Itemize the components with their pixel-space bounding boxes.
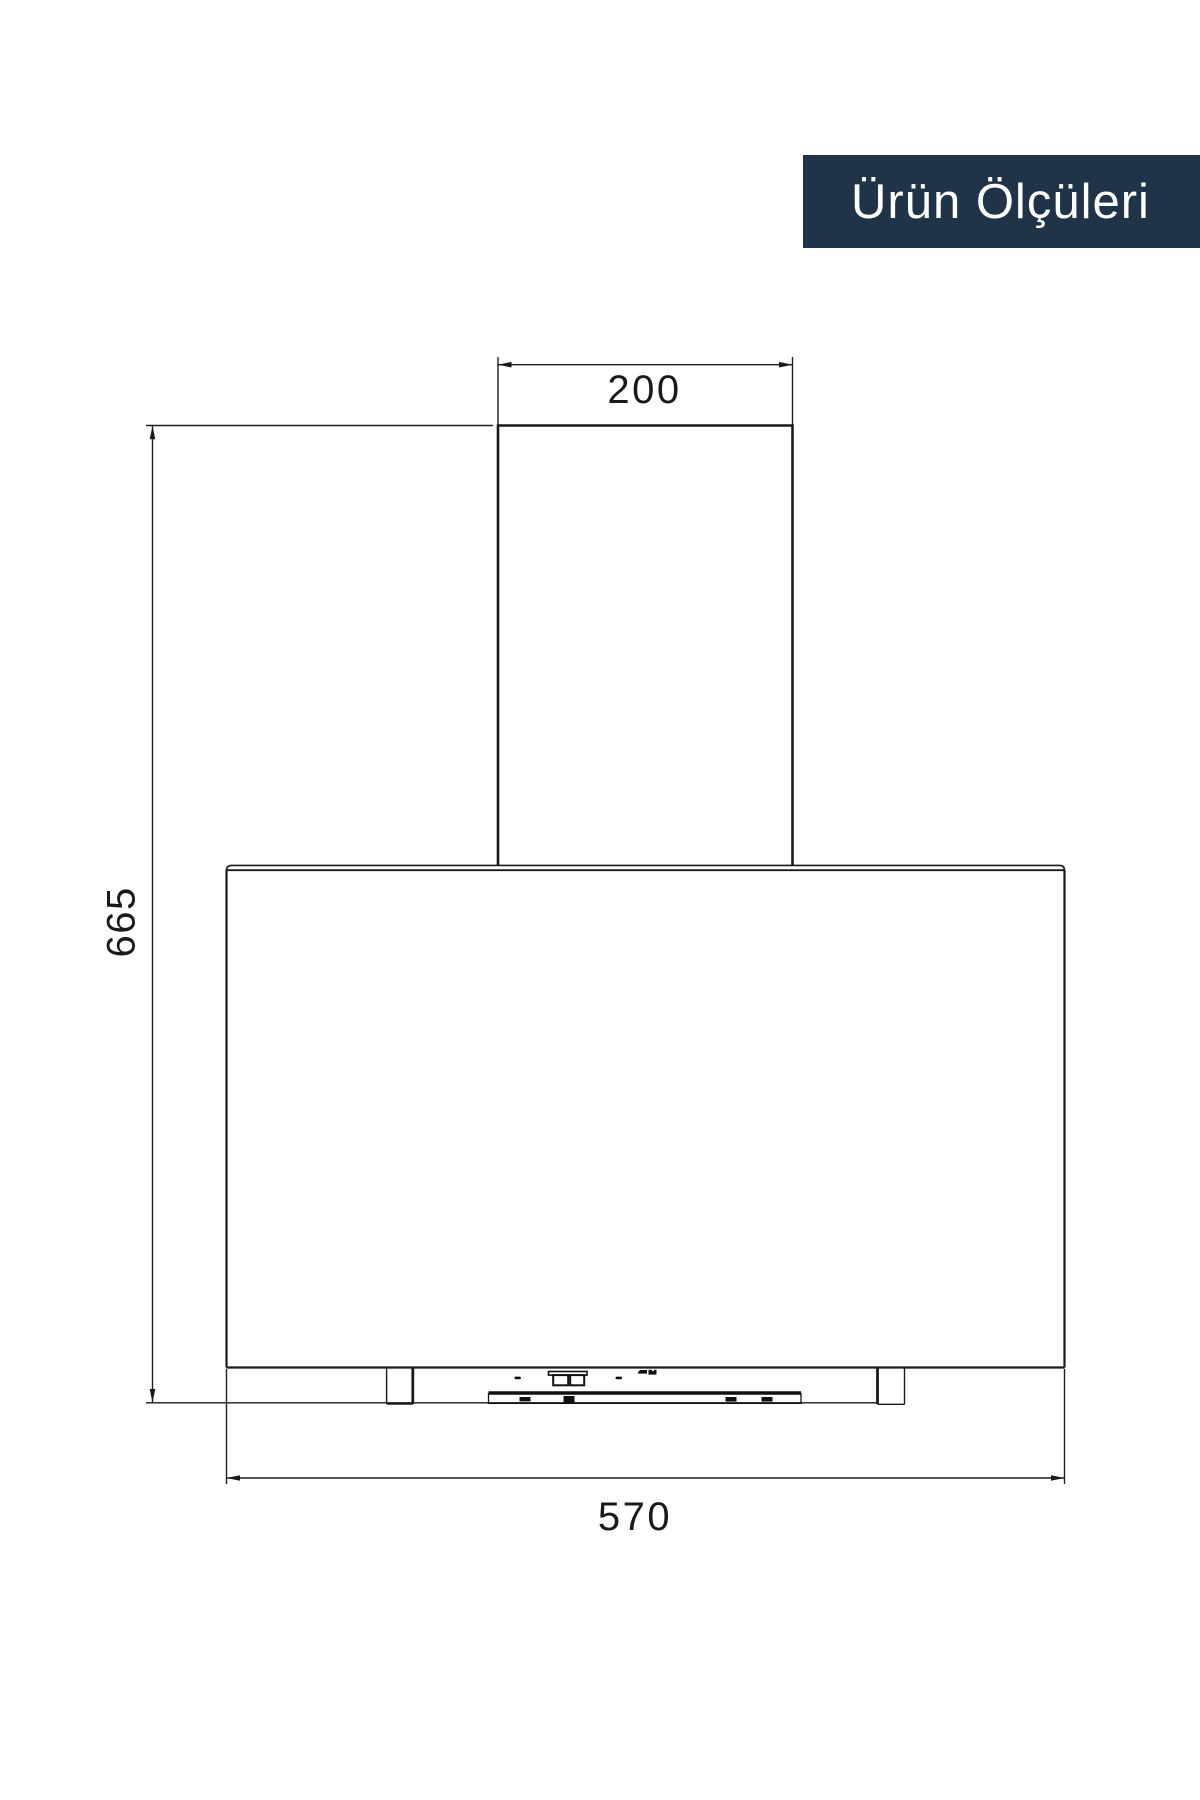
svg-text:570: 570 [598,1495,672,1539]
svg-text:665: 665 [100,886,144,957]
svg-text:200: 200 [607,368,681,412]
